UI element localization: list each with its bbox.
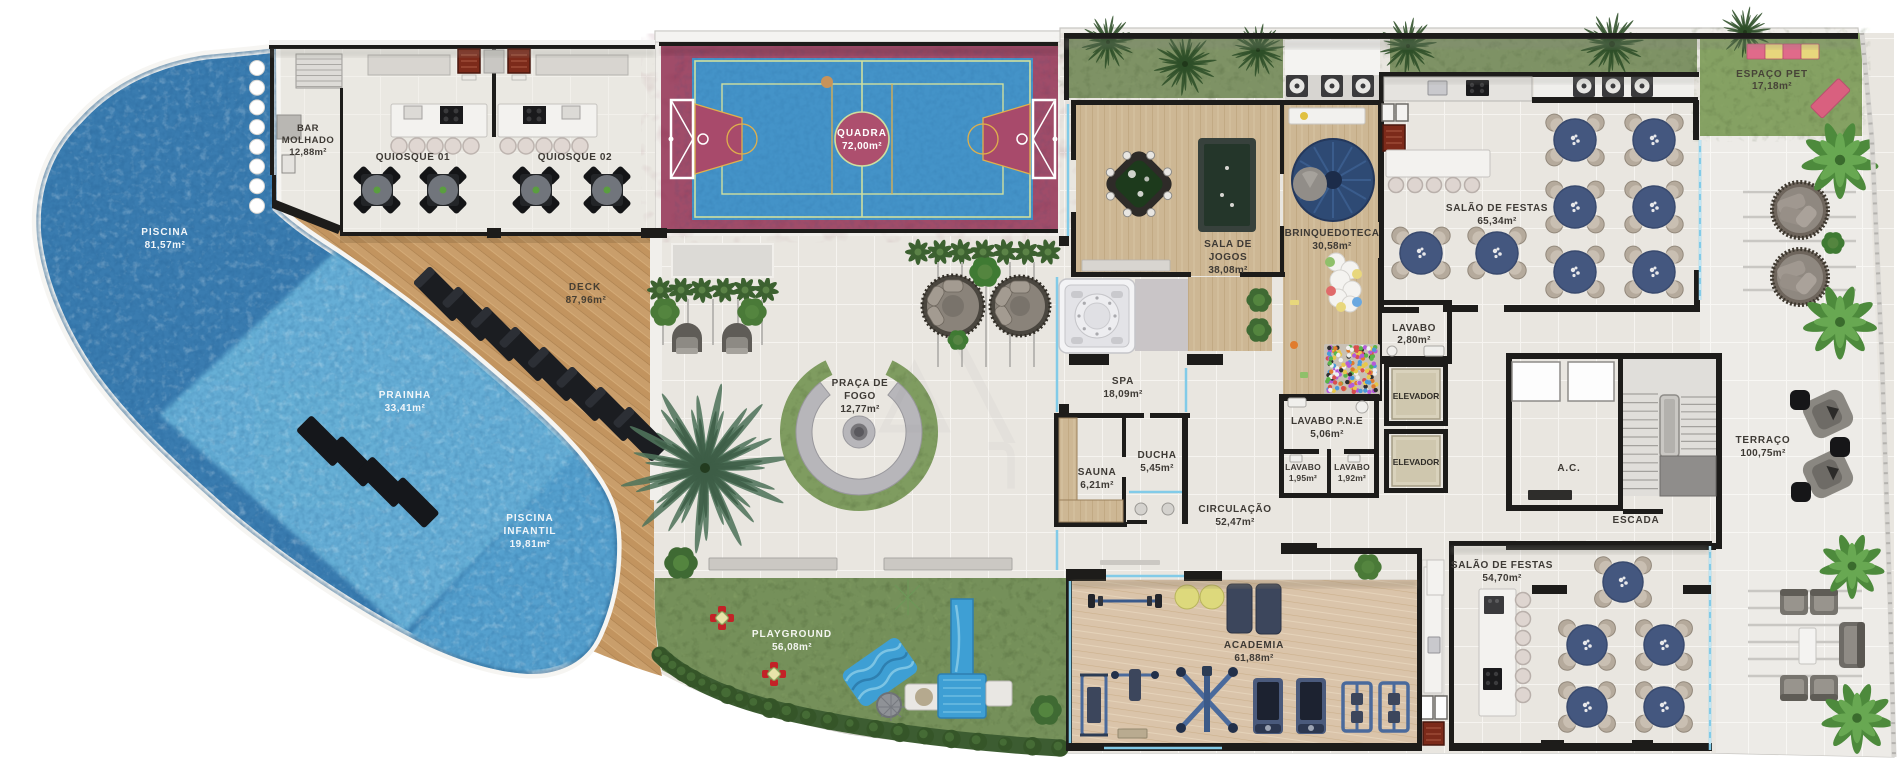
svg-text:87,96m²: 87,96m²	[566, 295, 607, 306]
svg-text:LAVABO: LAVABO	[1285, 462, 1321, 472]
svg-text:BAR: BAR	[297, 123, 319, 134]
svg-text:QUADRA: QUADRA	[837, 128, 887, 139]
svg-text:BRINQUEDOTECA: BRINQUEDOTECA	[1285, 228, 1380, 239]
svg-text:38,08m²: 38,08m²	[1208, 265, 1248, 276]
svg-text:ELEVADOR: ELEVADOR	[1393, 391, 1440, 401]
svg-text:╮: ╮	[988, 407, 1038, 489]
svg-text:SALÃO DE FESTAS: SALÃO DE FESTAS	[1451, 558, 1553, 571]
svg-text:17,18m²: 17,18m²	[1752, 81, 1792, 92]
svg-text:100,75m²: 100,75m²	[1740, 448, 1786, 459]
svg-text:TERRAÇO: TERRAÇO	[1735, 435, 1790, 446]
svg-text:19,81m²: 19,81m²	[510, 539, 551, 550]
svg-text:LAVABO P.N.E: LAVABO P.N.E	[1291, 416, 1363, 427]
svg-text:52,47m²: 52,47m²	[1215, 517, 1255, 528]
svg-text:ELEVADOR: ELEVADOR	[1393, 457, 1440, 467]
svg-text:81,57m²: 81,57m²	[145, 240, 186, 251]
svg-text:ESPAÇO PET: ESPAÇO PET	[1736, 69, 1808, 80]
svg-text:ESCADA: ESCADA	[1612, 515, 1659, 526]
svg-text:SAUNA: SAUNA	[1078, 467, 1117, 478]
svg-text:2,80m²: 2,80m²	[1397, 335, 1431, 346]
svg-text:FOGO: FOGO	[844, 391, 876, 402]
svg-text:LAVABO: LAVABO	[1392, 323, 1436, 334]
svg-text:ACADEMIA: ACADEMIA	[1224, 640, 1284, 651]
svg-text:30,58m²: 30,58m²	[1312, 241, 1352, 252]
svg-text:33,41m²: 33,41m²	[385, 403, 426, 414]
svg-text:12,77m²: 12,77m²	[840, 404, 880, 415]
svg-text:A.C.: A.C.	[1557, 463, 1580, 474]
svg-text:1,95m²: 1,95m²	[1289, 473, 1317, 483]
svg-text:LAVABO: LAVABO	[1334, 462, 1370, 472]
svg-text:JOGOS: JOGOS	[1209, 252, 1248, 263]
svg-text:MOLHADO: MOLHADO	[282, 135, 335, 146]
svg-text:5,45m²: 5,45m²	[1140, 463, 1174, 474]
svg-text:SALÃO DE FESTAS: SALÃO DE FESTAS	[1446, 201, 1548, 214]
svg-text:INFANTIL: INFANTIL	[504, 526, 557, 537]
svg-text:72,00m²: 72,00m²	[842, 141, 882, 152]
svg-text:CIRCULAÇÃO: CIRCULAÇÃO	[1198, 502, 1271, 515]
svg-text:18,09m²: 18,09m²	[1103, 389, 1143, 400]
svg-text:DUCHA: DUCHA	[1137, 450, 1176, 461]
svg-text:6,21m²: 6,21m²	[1080, 480, 1114, 491]
svg-text:PRAINHA: PRAINHA	[379, 390, 432, 401]
svg-text:SALA DE: SALA DE	[1204, 239, 1252, 250]
svg-text:SPA: SPA	[1112, 376, 1134, 387]
svg-text:PISCINA: PISCINA	[506, 513, 554, 524]
svg-text:54,70m²: 54,70m²	[1482, 573, 1522, 584]
svg-text:65,34m²: 65,34m²	[1477, 216, 1517, 227]
svg-text:56,08m²: 56,08m²	[772, 642, 812, 653]
svg-text:12,88m²: 12,88m²	[289, 147, 326, 158]
svg-text:PISCINA: PISCINA	[141, 227, 189, 238]
svg-text:DECK: DECK	[569, 282, 601, 293]
svg-text:PLAYGROUND: PLAYGROUND	[752, 629, 832, 640]
svg-text:61,88m²: 61,88m²	[1234, 653, 1274, 664]
svg-text:5,06m²: 5,06m²	[1310, 429, 1344, 440]
svg-text:1,92m²: 1,92m²	[1338, 473, 1366, 483]
svg-text:QUIOSQUE 01: QUIOSQUE 01	[376, 152, 450, 163]
svg-text:QUIOSQUE 02: QUIOSQUE 02	[538, 152, 612, 163]
